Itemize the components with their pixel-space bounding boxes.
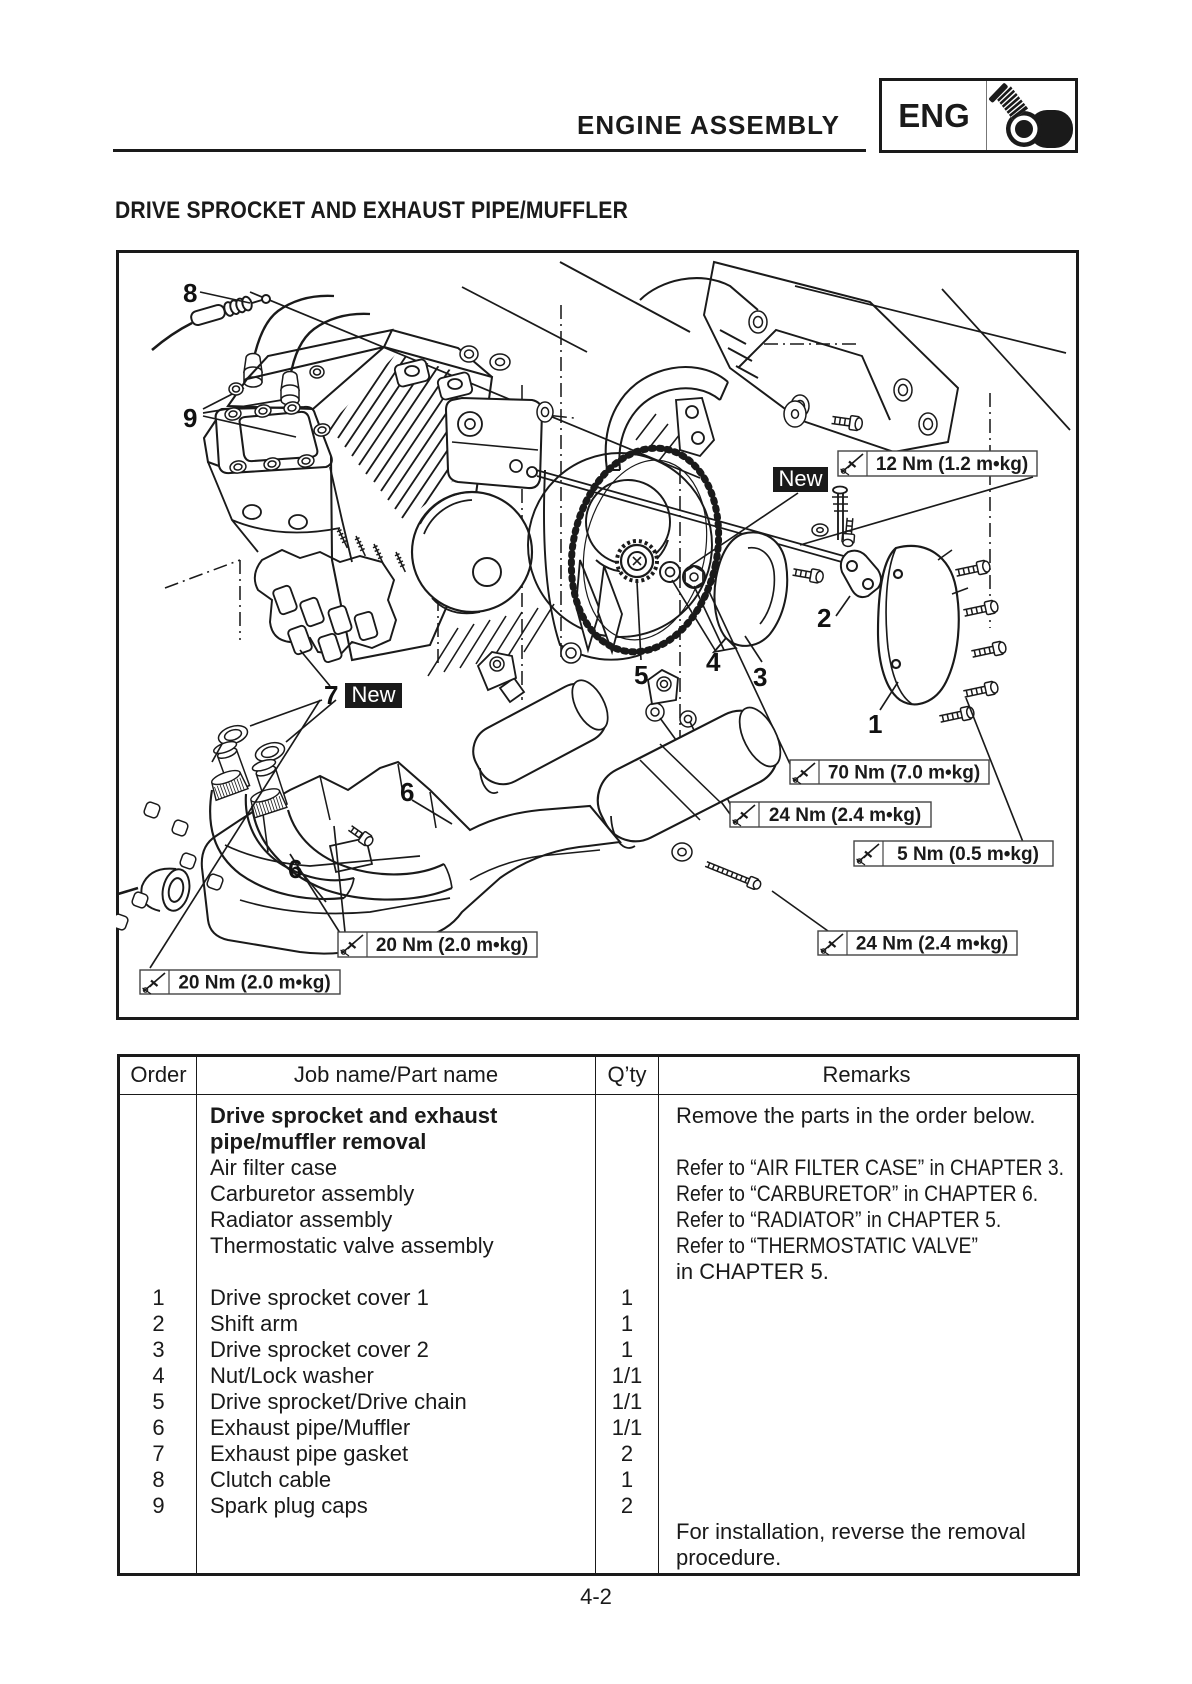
svg-text:6: 6 — [400, 777, 414, 807]
svg-text:4: 4 — [706, 647, 721, 677]
svg-text:9: 9 — [183, 403, 197, 433]
svg-text:New: New — [351, 682, 395, 707]
svg-text:2: 2 — [817, 603, 831, 633]
svg-text:8: 8 — [183, 278, 197, 308]
svg-text:24 Nm (2.4 m•kg): 24 Nm (2.4 m•kg) — [769, 805, 921, 826]
svg-text:12 Nm (1.2 m•kg): 12 Nm (1.2 m•kg) — [876, 454, 1028, 475]
svg-text:20 Nm (2.0 m•kg): 20 Nm (2.0 m•kg) — [178, 973, 330, 994]
svg-text:70 Nm (7.0 m•kg): 70 Nm (7.0 m•kg) — [828, 763, 980, 784]
svg-text:3: 3 — [753, 662, 767, 692]
svg-text:5 Nm (0.5 m•kg): 5 Nm (0.5 m•kg) — [897, 844, 1039, 865]
svg-text:New: New — [778, 466, 822, 491]
svg-text:5: 5 — [634, 660, 648, 690]
svg-text:24 Nm (2.4 m•kg): 24 Nm (2.4 m•kg) — [856, 934, 1008, 955]
svg-text:20 Nm (2.0 m•kg): 20 Nm (2.0 m•kg) — [376, 935, 528, 956]
svg-text:6: 6 — [288, 854, 302, 884]
svg-text:7: 7 — [324, 680, 338, 710]
svg-text:1: 1 — [868, 709, 882, 739]
